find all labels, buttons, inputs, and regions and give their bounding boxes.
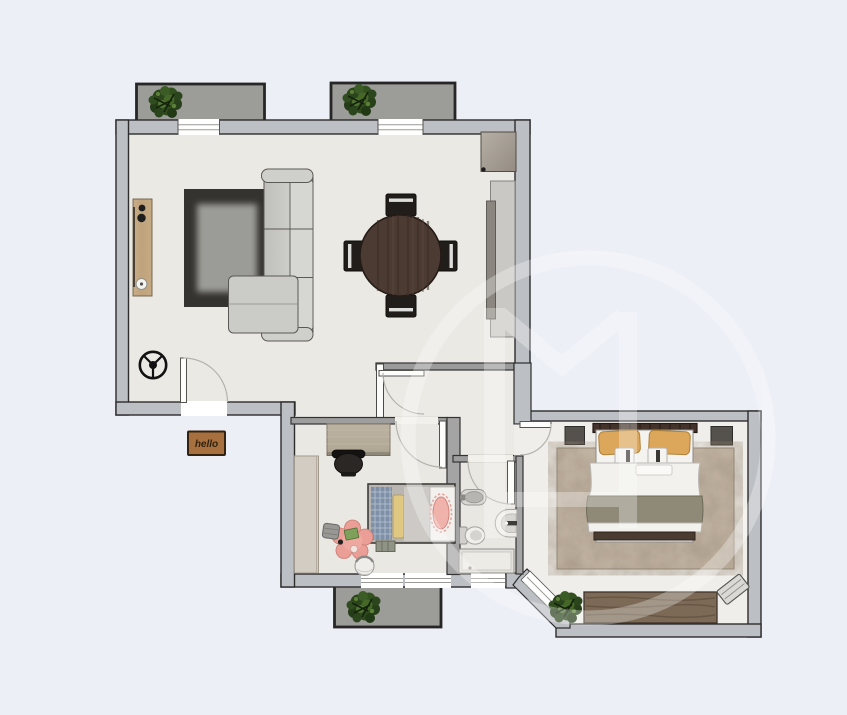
svg-text:hello: hello [195, 439, 218, 450]
